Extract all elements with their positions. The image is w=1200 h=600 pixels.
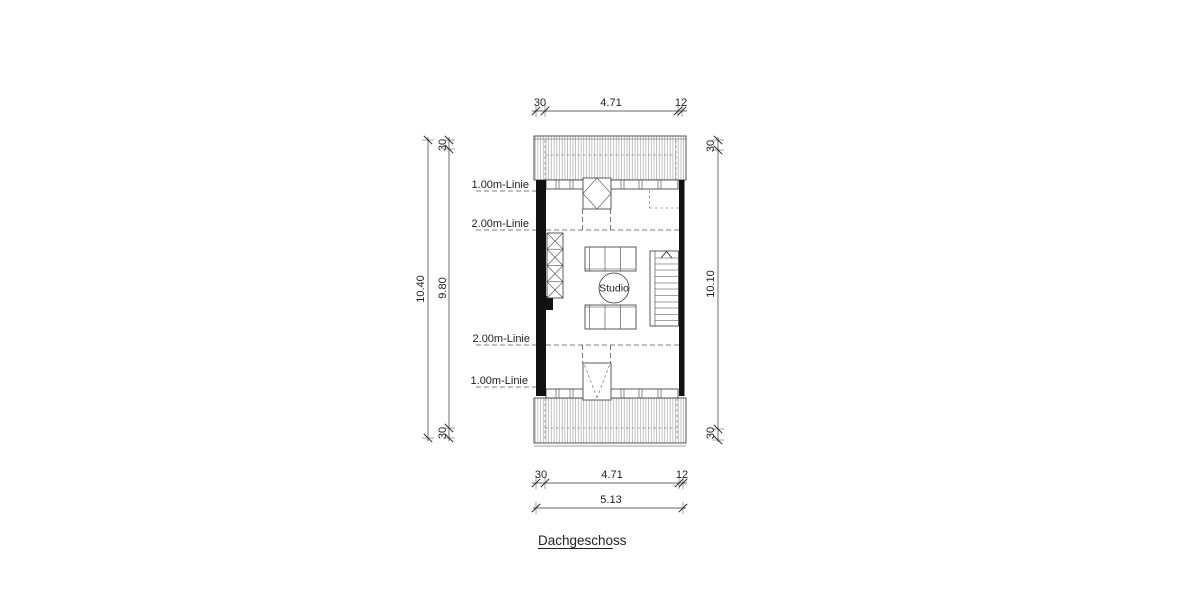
dim-left-offset-top: 30 [437,139,449,151]
floor-plan-canvas: 30 4.71 12 10.40 30 9.80 30 30 10.10 30 [0,0,1200,600]
floor-plan-drawing: 30 4.71 12 10.40 30 9.80 30 30 10.10 30 [0,0,1200,600]
height-line-label-1m-bottom: 1.00m-Linie [471,375,528,387]
wall-left [536,180,546,396]
dimension-chain-right: 30 10.10 30 [705,136,724,444]
dimension-chain-bottom: 30 4.71 12 5.13 [532,469,688,514]
dimension-chain-left: 10.40 30 9.80 30 [415,136,455,442]
dormer-bottom [583,363,611,400]
height-line-label-1m-top: 1.00m-Linie [472,179,529,191]
roof-area-bottom [534,398,686,446]
height-line-label-2m-bottom: 2.00m-Linie [473,333,530,345]
dim-bottom-interior: 4.71 [601,469,622,481]
dim-right-interior: 10.10 [705,270,717,298]
stairs [650,251,679,326]
dim-top-left-wall: 30 [534,97,546,109]
knee-wall-top [546,180,678,189]
title-block: Dachgeschoss [538,533,627,549]
dim-left-offset-bottom: 30 [437,427,449,439]
floor-plan-title: Dachgeschoss [538,533,627,548]
dim-bottom-total: 5.13 [600,494,621,506]
skylight-above-stairs [650,190,680,208]
room-label-bubble: Studio [599,273,629,303]
dim-top-interior: 4.71 [600,97,621,109]
knee-wall-bottom [546,389,678,398]
height-lines: 1.00m-Linie 2.00m-Linie 2.00m-Linie 1.00… [471,179,536,387]
dim-top-right-wall: 12 [675,97,687,109]
dormer-top [583,178,611,209]
wall-right [679,180,685,396]
dim-right-offset-top: 30 [705,140,717,152]
room-label-studio: Studio [599,283,629,295]
dim-left-total: 10.40 [415,275,427,303]
dimension-chain-top: 30 4.71 12 [532,97,687,117]
dim-right-offset-bottom: 30 [705,427,717,439]
dim-bottom-left-wall: 30 [535,469,547,481]
dim-bottom-right-wall: 12 [676,469,688,481]
sofa-bottom [585,305,636,329]
dim-left-interior: 9.80 [437,277,449,298]
sofa-top [585,247,636,271]
roof-area-top [534,136,686,180]
wardrobe [547,233,563,298]
height-line-label-2m-top: 2.00m-Linie [472,218,529,230]
